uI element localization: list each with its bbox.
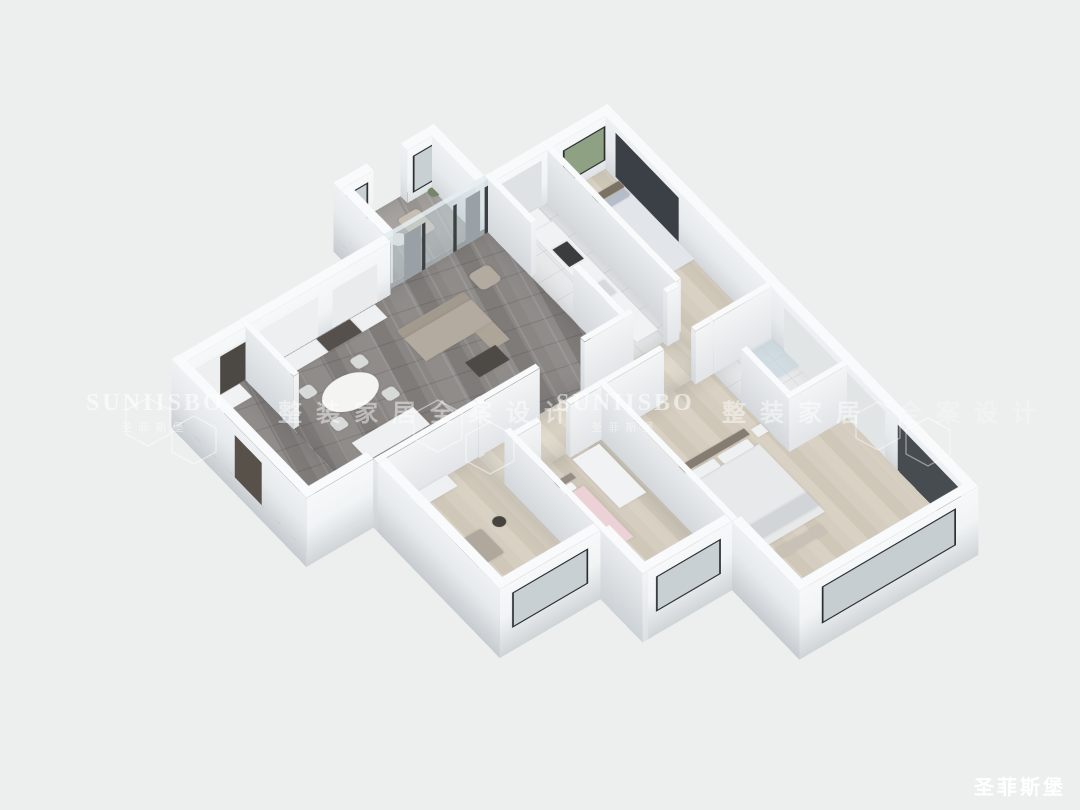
wall-panel [466, 190, 481, 245]
wall-panel [485, 186, 488, 235]
ext-wall-north-balcony-west-end [333, 183, 340, 259]
ext-wall-west-study-end [500, 584, 509, 658]
int-wall-study-east-south-end [643, 571, 649, 643]
ext-wall-west-master-end [799, 586, 808, 660]
ext-wall-west-foyer-end [306, 493, 315, 567]
wall-panel [422, 222, 425, 271]
watermark-cn: 全案设计 [898, 393, 1050, 428]
screenshot-canvas: SUNIISBO圣菲斯堡整装家居全案设计SUNIISBO圣菲斯堡整装家居全案设计… [0, 0, 1080, 810]
wall-panel [453, 204, 456, 253]
window-glass [413, 143, 435, 193]
wall-panel [404, 225, 421, 282]
brand-corner-logo: 圣菲斯堡 [974, 771, 1066, 800]
